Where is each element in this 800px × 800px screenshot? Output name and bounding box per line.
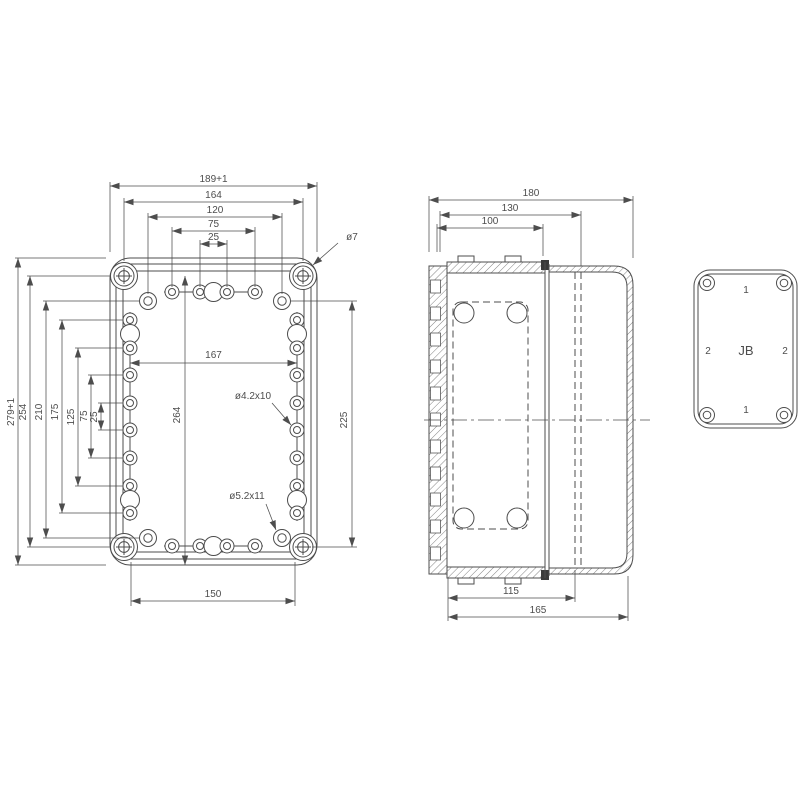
screw-pillar (507, 303, 527, 323)
screw-hole (290, 368, 304, 382)
screw-hole (123, 506, 137, 520)
side-dim-115: 115 (503, 586, 519, 597)
mount-hole (274, 530, 291, 547)
side-dim-100: 100 (482, 216, 499, 227)
face-view-labels: 1 2 JB 2 1 (705, 285, 788, 416)
front-dim-height-outer: 279+1 (6, 398, 17, 427)
drawing-svg: 189+1 164 120 75 25 279+1 254 210 175 12… (0, 0, 800, 800)
screw-hole (290, 451, 304, 465)
face-corner-screw (700, 408, 715, 423)
screw-hole (290, 341, 304, 355)
front-dim-25-left: 25 (89, 411, 100, 423)
front-dim-75-top: 75 (208, 219, 220, 230)
front-dim-inner-height: 264 (172, 406, 183, 423)
callout-corner-hole: ø7 (346, 232, 358, 243)
front-dim-inner-width: 167 (205, 350, 222, 361)
screw-hole (123, 451, 137, 465)
side-body-bottom-wall (447, 567, 545, 578)
face-corner-screw (777, 408, 792, 423)
screw-hole (123, 423, 137, 437)
technical-drawing: 189+1 164 120 75 25 279+1 254 210 175 12… (0, 0, 800, 800)
front-dim-120: 120 (207, 205, 224, 216)
face-label-bottom: 1 (743, 405, 749, 416)
mount-hole (140, 293, 157, 310)
screw-pillar (507, 508, 527, 528)
hidden-interior-outline (453, 302, 528, 529)
side-view (424, 256, 650, 584)
screw-hole (248, 285, 262, 299)
screw-hole (290, 396, 304, 410)
screw-hole (290, 506, 304, 520)
side-view-labels: 180 130 100 115 165 (482, 188, 547, 616)
front-dim-right-height: 225 (339, 411, 350, 428)
side-body-top-wall (447, 262, 545, 273)
enclosure-inner-wall (123, 271, 304, 552)
face-corner-screw (777, 276, 792, 291)
corner-screw-boss (111, 263, 138, 290)
callout-screw-hole: ø4.2x10 (235, 391, 272, 402)
mount-hole (140, 530, 157, 547)
mount-hole (274, 293, 291, 310)
corner-screw-boss (290, 263, 317, 290)
screw-hole-leader (272, 403, 291, 425)
screw-hole (165, 285, 179, 299)
screw-hole (220, 539, 234, 553)
mount-hole-leader (266, 504, 276, 530)
front-dim-210: 210 (34, 403, 45, 420)
screw-hole (123, 396, 137, 410)
front-dim-254: 254 (18, 403, 29, 420)
front-dim-125: 125 (66, 408, 77, 425)
screw-hole (123, 368, 137, 382)
screw-pillar (454, 508, 474, 528)
screw-hole (165, 539, 179, 553)
front-dim-width-outer: 189+1 (199, 174, 228, 185)
front-view (110, 258, 317, 565)
callout-mount-hole: ø5.2x11 (229, 491, 265, 502)
face-label-left: 2 (705, 346, 711, 357)
face-corner-screw (700, 276, 715, 291)
screw-hole (248, 539, 262, 553)
screw-pillar (454, 303, 474, 323)
front-dim-bottom-width: 150 (205, 589, 222, 600)
front-dim-175: 175 (50, 403, 61, 420)
side-dim-180: 180 (523, 188, 540, 199)
front-dim-25-top: 25 (208, 232, 220, 243)
side-dim-130: 130 (502, 203, 519, 214)
corner-screw-boss (111, 534, 138, 561)
face-label-right: 2 (782, 346, 788, 357)
screw-hole (290, 423, 304, 437)
front-dim-164: 164 (205, 190, 222, 201)
face-label-top: 1 (743, 285, 749, 296)
screw-hole (123, 341, 137, 355)
side-dim-165: 165 (530, 605, 547, 616)
face-label-center: JB (738, 343, 753, 358)
screw-hole (220, 285, 234, 299)
